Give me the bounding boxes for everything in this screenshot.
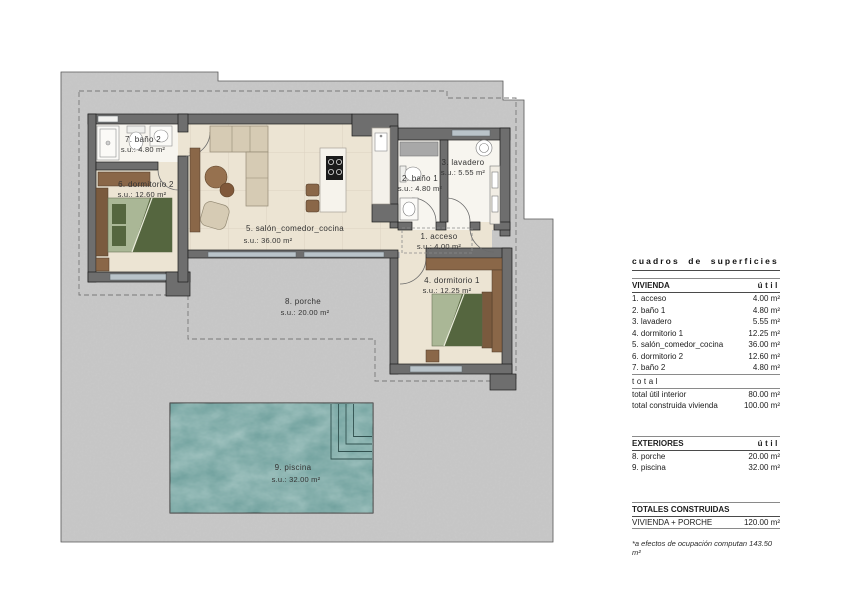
wall-dorm1-east <box>502 248 512 380</box>
row-value: 20.00 m² <box>748 451 780 463</box>
vivienda-header: VIVIENDA <box>632 281 670 290</box>
label-dorm2-area: s.u.: 12.60 m² <box>118 190 167 199</box>
row-value: 4.00 m² <box>753 293 780 305</box>
row-value: 120.00 m² <box>744 517 780 529</box>
laundry-shelf <box>492 196 498 212</box>
window-dorm2 <box>110 274 166 280</box>
label-dorm2: 6. dormitorio 2 <box>118 180 174 189</box>
washbasin <box>403 202 415 216</box>
table-footnote: *a efectos de ocupación computan 143.50 … <box>632 539 780 557</box>
table-row: 8. porche 20.00 m² <box>632 451 780 463</box>
shower-drain <box>106 141 110 145</box>
totales-header: TOTALES CONSTRUIDAS <box>632 505 729 514</box>
wall-east-utility <box>500 128 510 236</box>
laundry-sink <box>492 172 498 188</box>
total-label: total <box>632 375 780 388</box>
wall-bano2-east-a <box>178 114 188 132</box>
floorplan-page: 1. acceso s.u.: 4.00 m² 2. baño 1 s.u.: … <box>0 0 850 614</box>
sofa-top <box>210 126 268 152</box>
table-row: 7. baño 2 4.80 m² <box>632 362 780 374</box>
row-value: 4.80 m² <box>753 362 780 374</box>
row-label: total construida vivienda <box>632 400 718 412</box>
table-row: 6. dormitorio 2 12.60 m² <box>632 351 780 363</box>
row-value: 32.00 m² <box>748 462 780 474</box>
table-title: cuadros de superficies <box>632 256 780 266</box>
tv-unit <box>190 148 200 232</box>
door-strip <box>178 132 188 156</box>
window-lavadero <box>452 130 490 136</box>
wall-west <box>88 114 96 282</box>
row-label: total útil interior <box>632 389 686 401</box>
row-value: 12.60 m² <box>748 351 780 363</box>
dorm1-pillow <box>468 298 480 318</box>
dorm1-nightstand <box>426 350 439 362</box>
label-acceso-area: s.u.: 4.00 m² <box>417 242 462 251</box>
label-piscina: 9. piscina <box>275 463 312 472</box>
table-row: VIVIENDA + PORCHE 120.00 m² <box>632 517 780 529</box>
label-porche-area: s.u.: 20.00 m² <box>281 308 330 317</box>
wall-north <box>88 114 352 124</box>
dorm1-wardrobe <box>492 270 502 352</box>
wall-dorm1-west <box>390 252 398 374</box>
window-salon-b <box>304 252 384 257</box>
row-label: 4. dormitorio 1 <box>632 328 683 340</box>
row-value: 5.55 m² <box>753 316 780 328</box>
table-row: 2. baño 1 4.80 m² <box>632 305 780 317</box>
table-row: total construida vivienda 100.00 m² <box>632 400 780 412</box>
exteriores-unit-col: útil <box>758 439 780 448</box>
shower-tray <box>400 142 438 156</box>
totales-header-row: TOTALES CONSTRUIDAS <box>632 503 780 516</box>
row-label: 6. dormitorio 2 <box>632 351 683 363</box>
wall-partition-bano2 <box>96 162 158 170</box>
row-label: 3. lavadero <box>632 316 672 328</box>
label-bano2-area: s.u.: 4.80 m² <box>121 145 166 154</box>
dorm1-closet <box>426 258 502 270</box>
row-value: 36.00 m² <box>748 339 780 351</box>
door-strip <box>412 222 436 230</box>
wall-kitchen-corner <box>372 204 398 222</box>
table-row: 3. lavadero 5.55 m² <box>632 316 780 328</box>
surfaces-table: cuadros de superficies VIVIENDA útil 1. … <box>632 256 780 557</box>
row-label: 1. acceso <box>632 293 666 305</box>
pool-water-texture <box>170 403 373 513</box>
wall-lavadero-south <box>470 222 480 230</box>
wall-bano2-east-b <box>178 156 188 282</box>
dorm2-pillow <box>112 226 126 246</box>
wall-bano1-south-b <box>436 222 446 230</box>
label-lavadero: 3. lavadero <box>442 158 485 167</box>
row-label: 9. piscina <box>632 462 666 474</box>
dorm1-headboard <box>482 292 492 348</box>
label-dorm1-area: s.u.: 12.25 m² <box>423 286 472 295</box>
window-dorm1 <box>410 366 462 372</box>
row-value: 12.25 m² <box>748 328 780 340</box>
dorm2-headboard <box>96 188 108 256</box>
dorm2-nightstand <box>96 258 109 271</box>
label-porche: 8. porche <box>285 297 321 306</box>
wall-dorm1-foot <box>490 374 516 390</box>
vivienda-unit-col: útil <box>758 281 780 290</box>
dorm1-pillow <box>468 320 480 340</box>
window-salon-a <box>208 252 296 257</box>
table-row: 9. piscina 32.00 m² <box>632 462 780 474</box>
row-label: 5. salón_comedor_cocina <box>632 339 723 351</box>
label-bano1: 2. baño 1 <box>402 174 438 183</box>
label-salon-area: s.u.: 36.00 m² <box>244 236 293 245</box>
table-row: total útil interior 80.00 m² <box>632 389 780 401</box>
label-bano1-area: s.u.: 4.80 m² <box>398 184 443 193</box>
row-label: 2. baño 1 <box>632 305 665 317</box>
label-bano2: 7. baño 2 <box>125 135 161 144</box>
row-value: 4.80 m² <box>753 305 780 317</box>
label-salon: 5. salón_comedor_cocina <box>246 224 344 233</box>
row-value: 80.00 m² <box>748 389 780 401</box>
row-label: 8. porche <box>632 451 665 463</box>
table-row: 4. dormitorio 1 12.25 m² <box>632 328 780 340</box>
kitchen-stool <box>306 200 319 212</box>
window-bano2 <box>98 116 118 122</box>
row-value: 100.00 m² <box>744 400 780 412</box>
label-acceso: 1. acceso <box>421 232 458 241</box>
exteriores-header: EXTERIORES <box>632 439 684 448</box>
wall-bano1-south-a <box>398 222 412 230</box>
row-label: 7. baño 2 <box>632 362 665 374</box>
door-strip <box>158 162 178 170</box>
door-strip <box>446 222 470 230</box>
row-label: VIVIENDA + PORCHE <box>632 517 712 529</box>
faucet <box>380 135 383 138</box>
side-table <box>220 183 234 197</box>
label-lavadero-area: s.u.: 5.55 m² <box>441 168 486 177</box>
dorm2-pillow <box>112 204 126 224</box>
vivienda-header-row: VIVIENDA útil <box>632 279 780 292</box>
washing-machine <box>476 140 492 156</box>
table-row: 5. salón_comedor_cocina 36.00 m² <box>632 339 780 351</box>
door-strip <box>390 228 398 252</box>
pool <box>170 403 373 513</box>
sofa-side <box>246 152 268 206</box>
exteriores-header-row: EXTERIORES útil <box>632 437 780 450</box>
table-row: 1. acceso 4.00 m² <box>632 293 780 305</box>
kitchen-stool <box>306 184 319 196</box>
label-piscina-area: s.u.: 32.00 m² <box>272 475 321 484</box>
wall-partition-lavadero <box>440 140 448 222</box>
label-dorm1: 4. dormitorio 1 <box>424 276 480 285</box>
